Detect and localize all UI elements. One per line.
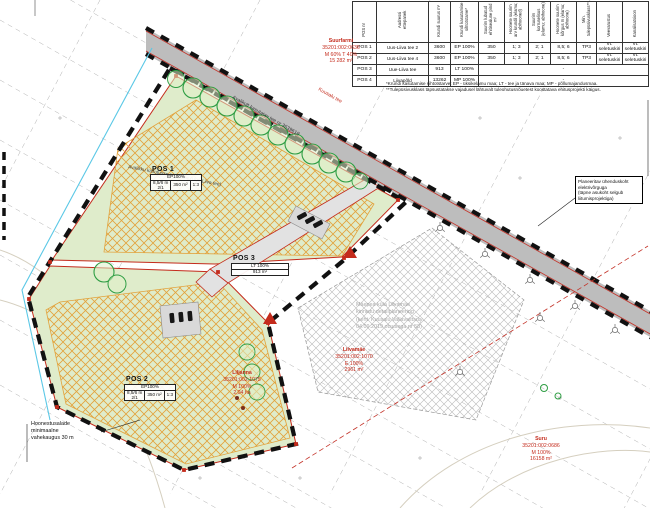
parcel-name: Liljanna bbox=[208, 370, 276, 377]
col-header: Hoonete suurim arv krundil (elamu; abiho… bbox=[509, 2, 523, 37]
electric-connection-note: Planeeritav ühenduskoht elektrivõrguga (… bbox=[575, 176, 643, 204]
pos2-floors: 2/1 bbox=[127, 396, 142, 401]
parcel-use: E 100% bbox=[315, 361, 393, 368]
col-header: Hoonete suurim kõrgus m (elamu; abihoone… bbox=[556, 2, 570, 37]
pos2-height-floors: 8,5/6 m 2/1 bbox=[125, 390, 145, 401]
cell: TP3 bbox=[577, 43, 597, 54]
table-row: POS 1 Uus-Liiva tee 2 3600 EP 100% 350 1… bbox=[353, 43, 649, 54]
note-line: (keht. Kuusalu Vallavalitsus bbox=[356, 317, 430, 324]
parcel-name: Suurfarmi bbox=[300, 38, 382, 45]
parcel-area: 2961 m² bbox=[315, 367, 393, 374]
cell: EP 100% bbox=[451, 43, 479, 54]
col-header: Min. tulepüsivusklass** bbox=[582, 2, 592, 37]
cadastral-label-liljanna: Liljanna 35201:002:1075 M 100% 2,04 ha bbox=[208, 370, 276, 397]
parcel-code: 35201:002:1075 bbox=[208, 377, 276, 384]
building-spacing-note: Hoonestusalade minimaalne vahekaugus 30 … bbox=[31, 421, 101, 442]
cell: 8,5; 6 bbox=[551, 43, 577, 54]
table-footnotes: *Krundi kasutamise sihtotstarve: EP - ük… bbox=[386, 81, 648, 93]
table-row: POS 2 Uus-Liiva tee 4 3600 EP 100% 350 1… bbox=[353, 54, 649, 65]
building-rights-table: POS nr Aadressi ettepanek Krundi suurus … bbox=[352, 1, 649, 87]
parcel-area: 15 282 m² bbox=[300, 58, 382, 65]
table-row: POS 3 Uue-Liiva tee 913 LT 100% - bbox=[353, 65, 649, 76]
cell: 1; 3 bbox=[505, 54, 529, 65]
parcel-area: 2,04 ha bbox=[208, 390, 276, 397]
footnote-2: **Tulepüsivusklass täpsustatakse vajadus… bbox=[386, 87, 648, 93]
table-header-row: POS nr Aadressi ettepanek Krundi suurus … bbox=[353, 2, 649, 43]
cell: POS 4 bbox=[353, 76, 377, 87]
cadastral-label-suurfarmi: Suurfarmi 35201:002:0636 M 60% T 40% 15 … bbox=[300, 38, 382, 65]
road-side-label: Kuusalu tee bbox=[317, 87, 343, 105]
cell: 1; 3 bbox=[505, 43, 529, 54]
col-header: Krundi suurus m² bbox=[437, 5, 442, 37]
pos3-info-box: LT 100% 913 m² bbox=[231, 263, 289, 276]
pos2-ratio: 1:3 bbox=[164, 390, 175, 401]
cell: Uus-Liiva tee 2 bbox=[377, 43, 429, 54]
col-header: Suurim korruselisus (elamu; abihoone) bbox=[532, 2, 546, 37]
cell: Uue-Liiva tee bbox=[377, 65, 429, 76]
col-header: Krundi kasutamise sihtotstarve* bbox=[460, 2, 470, 37]
cell: 913 bbox=[429, 65, 451, 76]
cell: 2; 1 bbox=[529, 43, 551, 54]
cell: Vt. seletuskiri bbox=[623, 54, 649, 65]
col-header: Aadressi ettepanek bbox=[398, 2, 408, 37]
pos3-area: 913 m² bbox=[232, 269, 289, 275]
col-header: Suurim lubatud ehitisealune pind m² bbox=[484, 2, 498, 37]
note-line: liitumisprojektiga) bbox=[578, 196, 640, 202]
cell: 2; 1 bbox=[529, 54, 551, 65]
note-line: Mäepea küla Liivamäe bbox=[356, 302, 430, 309]
parcel-code: 35201:002:0636 bbox=[300, 45, 382, 52]
pos3-title: POS 3 bbox=[233, 255, 289, 262]
site-plan-drawing: Avalikult kasutatav tee nr 3539618 Kuusa… bbox=[0, 0, 650, 508]
cell: Vt. seletuskiri bbox=[623, 43, 649, 54]
pos1-ratio: 1:3 bbox=[190, 180, 201, 191]
cell: LT 100% bbox=[451, 65, 479, 76]
pos1-info-box: EP100% 8,5/6 m 2/1 350 m² 1:3 bbox=[150, 174, 202, 191]
parcel-code: 35201:002:0686 bbox=[505, 443, 577, 450]
note-line: 04.09.2019 otsusega nr 58) bbox=[356, 324, 430, 331]
note-line: kinnistu detailplaneering bbox=[356, 309, 430, 316]
cadastral-label-liivamae: Liivamäe 35201:002:1070 E 100% 2961 m² bbox=[315, 347, 393, 374]
cell: TP3 bbox=[577, 54, 597, 65]
pos2-info-box: EP100% 8,5/6 m 2/1 350 m² 1:3 bbox=[124, 384, 176, 401]
cell: 3600 bbox=[429, 43, 451, 54]
cell-merged: - bbox=[479, 65, 649, 76]
note-line: vahekaugus 30 m bbox=[31, 435, 101, 442]
cell: 3600 bbox=[429, 54, 451, 65]
cell: EP 100% bbox=[451, 54, 479, 65]
pos1-title: POS 1 bbox=[152, 166, 202, 173]
cell: Uus-Liiva tee 4 bbox=[377, 54, 429, 65]
parcel-name: Suru bbox=[505, 436, 577, 443]
pos3-label: POS 3 LT 100% 913 m² bbox=[231, 255, 289, 276]
cell: 350 bbox=[479, 54, 505, 65]
col-header: POS nr bbox=[362, 23, 367, 37]
parcel-use: M 100% bbox=[208, 384, 276, 391]
parcel-use: M 100% bbox=[505, 450, 577, 457]
pos2-area: 350 m² bbox=[145, 390, 164, 401]
cell: 8,5; 6 bbox=[551, 54, 577, 65]
cell: 350 bbox=[479, 43, 505, 54]
cadastral-label-suru: Suru 35201:002:0686 M 100% 16158 m² bbox=[505, 436, 577, 463]
parcel-code: 35201:002:1070 bbox=[315, 354, 393, 361]
pos1-floors: 2/1 bbox=[153, 186, 168, 191]
neighbor-plan-note: Mäepea küla Liivamäe kinnistu detailplan… bbox=[356, 302, 430, 331]
pos1-label: POS 1 EP100% 8,5/6 m 2/1 350 m² 1:3 bbox=[150, 166, 202, 191]
pos1-height-floors: 8,5/6 m 2/1 bbox=[151, 180, 171, 191]
parcel-name: Liivamäe bbox=[315, 347, 393, 354]
col-header: Veevarustus bbox=[607, 14, 612, 37]
pos2-title: POS 2 bbox=[126, 376, 176, 383]
pos1-area: 350 m² bbox=[171, 180, 190, 191]
cell: Vt. seletuskiri bbox=[597, 43, 623, 54]
note-line: minimaalne bbox=[31, 428, 101, 435]
parcel-area: 16158 m² bbox=[505, 456, 577, 463]
cell: Vt. seletuskiri bbox=[597, 54, 623, 65]
col-header: Kanalisatsioon bbox=[633, 10, 638, 37]
parking-pad-b bbox=[160, 302, 201, 338]
pos2-label: POS 2 EP100% 8,5/6 m 2/1 350 m² 1:3 bbox=[124, 376, 176, 401]
note-line: Hoonestusalade bbox=[31, 421, 101, 428]
parcel-use: M 60% T 40% bbox=[300, 52, 382, 59]
cell: POS 3 bbox=[353, 65, 377, 76]
